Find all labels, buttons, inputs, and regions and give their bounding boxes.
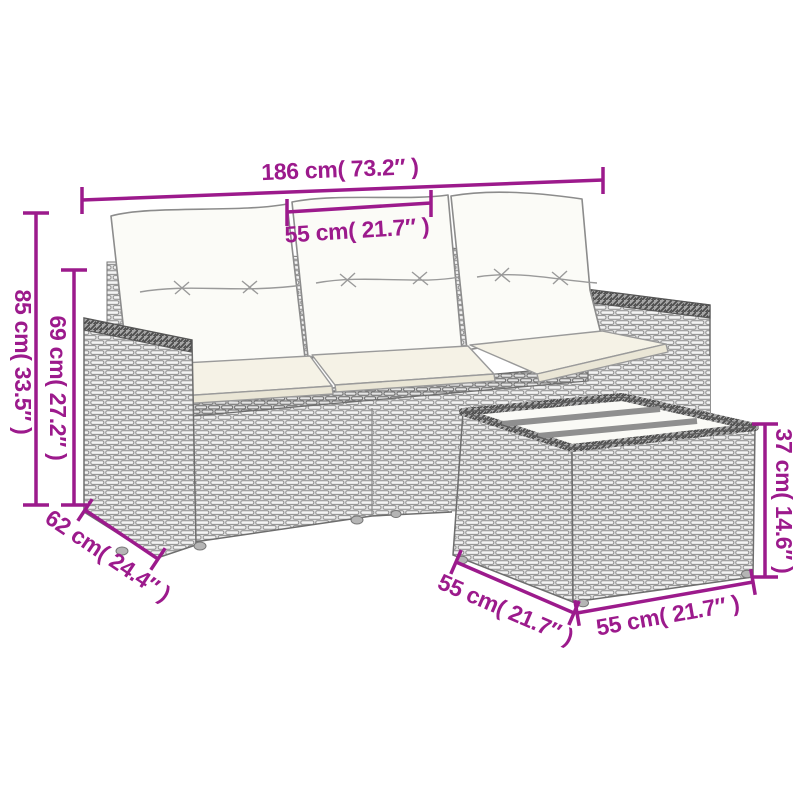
- sofa-foot: [391, 511, 401, 518]
- back-cushion-3: [451, 192, 601, 350]
- sofa-foot: [194, 542, 206, 550]
- product-diagram-canvas: 186 cm( 73.2″ ) 55 cm( 21.7″ ) 85 cm( 33…: [0, 0, 800, 800]
- sofa-set-dimension-figure: 186 cm( 73.2″ ) 55 cm( 21.7″ ) 85 cm( 33…: [0, 0, 800, 800]
- sofa-foot: [351, 516, 363, 524]
- ottoman-right-face: [572, 427, 755, 602]
- dim-label-sofa-height: 85 cm( 33.5″ ): [10, 290, 36, 435]
- dim-label-sofa-width: 186 cm( 73.2″ ): [261, 153, 419, 185]
- ottoman-illustration: [453, 397, 755, 607]
- back-cushion-3-group: [451, 192, 601, 350]
- dim-label-ottoman-height: 37 cm( 14.6″ ): [771, 429, 797, 574]
- dim-label-back-height: 69 cm( 27.2″ ): [45, 316, 71, 461]
